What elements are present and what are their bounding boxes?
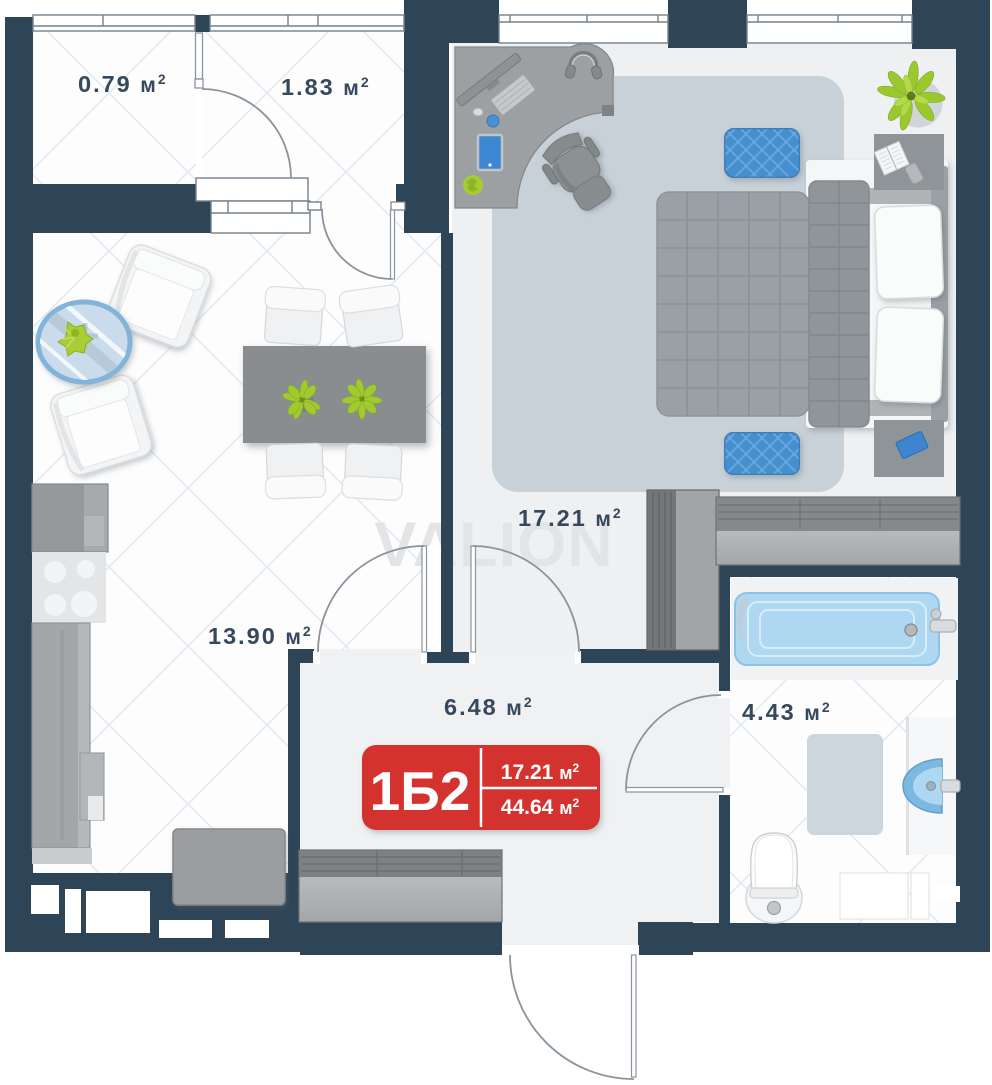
svg-text:0.79 м2: 0.79 м2 — [78, 71, 168, 97]
svg-text:13.90 м2: 13.90 м2 — [208, 623, 313, 649]
svg-text:17.21 м2: 17.21 м2 — [501, 761, 580, 784]
svg-text:4.43 м2: 4.43 м2 — [742, 699, 832, 725]
svg-text:44.64 м2: 44.64 м2 — [501, 796, 580, 819]
svg-text:6.48 м2: 6.48 м2 — [444, 694, 534, 720]
svg-text:17.21 м2: 17.21 м2 — [518, 505, 623, 531]
svg-text:1Б2: 1Б2 — [370, 760, 471, 822]
svg-text:1.83 м2: 1.83 м2 — [281, 74, 371, 100]
